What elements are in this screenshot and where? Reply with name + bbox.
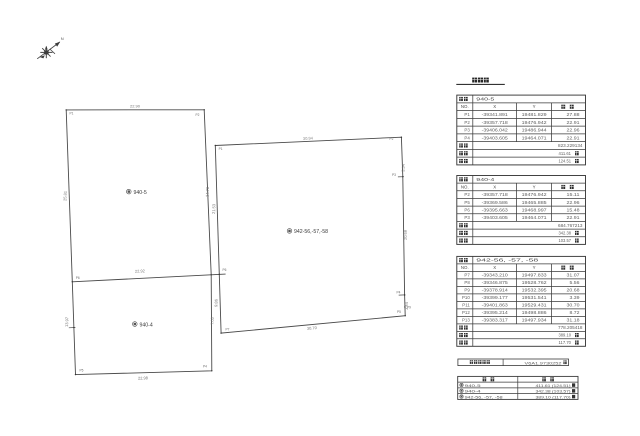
svg-text:-39383.317: -39383.317 (482, 318, 509, 323)
svg-text:P13: P13 (462, 318, 470, 323)
svg-text:19476.942: 19476.942 (522, 192, 548, 197)
svg-text:389.10 (117.70): 389.10 (117.70) (536, 394, 572, 399)
svg-text:P12: P12 (462, 310, 470, 315)
svg-text:19528.762: 19528.762 (522, 280, 548, 285)
svg-text:15.48: 15.48 (567, 207, 581, 212)
svg-text:8.72: 8.72 (570, 310, 581, 315)
svg-text:P1: P1 (464, 112, 470, 117)
svg-text:-39357.718: -39357.718 (482, 120, 509, 125)
svg-text:684.767213: 684.767213 (558, 223, 583, 228)
svg-text:30.94: 30.94 (303, 136, 314, 141)
svg-text:19531.541: 19531.541 (522, 295, 548, 300)
svg-text:342.38 (103.57): 342.38 (103.57) (536, 389, 572, 394)
svg-text:22.91: 22.91 (567, 135, 581, 140)
svg-text:N: N (61, 36, 64, 41)
svg-text:-39378.914: -39378.914 (482, 288, 509, 293)
svg-text:942-56, -57, -58: 942-56, -57, -58 (476, 258, 539, 263)
svg-text:19464.071: 19464.071 (522, 135, 548, 140)
svg-text:-39395.663: -39395.663 (482, 207, 509, 212)
svg-text:P4: P4 (203, 365, 207, 369)
svg-text:19476.942: 19476.942 (522, 120, 548, 125)
svg-text:P6: P6 (464, 207, 470, 212)
svg-text:124.51: 124.51 (559, 159, 572, 164)
svg-text:7.03: 7.03 (210, 316, 215, 325)
svg-text:940-5: 940-5 (134, 190, 147, 196)
svg-text:19468.997: 19468.997 (522, 207, 548, 212)
svg-text:942-56, -57, -58: 942-56, -57, -58 (465, 394, 504, 399)
svg-text:Y: Y (533, 265, 536, 270)
svg-text:25.81: 25.81 (62, 190, 67, 201)
svg-text:940-5: 940-5 (465, 383, 482, 388)
svg-text:3.39: 3.39 (570, 295, 581, 300)
svg-text:-39357.718: -39357.718 (482, 192, 509, 197)
svg-text:19486.944: 19486.944 (522, 128, 548, 133)
svg-text:31.07: 31.07 (567, 273, 581, 278)
svg-text:P7: P7 (464, 273, 470, 278)
svg-text:P4: P4 (464, 135, 470, 140)
svg-text:19481.829: 19481.829 (522, 112, 548, 117)
svg-text:30.70: 30.70 (567, 303, 581, 308)
svg-text:NO.: NO. (461, 104, 469, 109)
svg-text:-39406.042: -39406.042 (482, 128, 509, 133)
svg-text:940-4: 940-4 (476, 177, 495, 182)
svg-text:22.90: 22.90 (130, 103, 141, 108)
svg-text:X: X (493, 104, 496, 109)
svg-text:V6A1.9730252: V6A1.9730252 (525, 361, 562, 365)
svg-text:19529.431: 19529.431 (522, 303, 548, 308)
svg-text:-39403.605: -39403.605 (482, 135, 509, 140)
svg-text:Y: Y (533, 104, 536, 109)
svg-text:19464.071: 19464.071 (522, 215, 548, 220)
svg-text:P6: P6 (76, 276, 80, 280)
svg-text:778.205418: 778.205418 (558, 325, 583, 330)
svg-text:X: X (493, 184, 496, 189)
svg-text:P7: P7 (226, 328, 230, 332)
svg-text:5.54: 5.54 (400, 163, 405, 172)
svg-text:P3: P3 (392, 173, 396, 177)
svg-text:22.92: 22.92 (135, 268, 146, 274)
svg-text:19497.833: 19497.833 (522, 273, 548, 278)
svg-text:20.69: 20.69 (403, 229, 408, 240)
svg-text:24.78: 24.78 (205, 186, 210, 197)
svg-text:P9: P9 (464, 288, 470, 293)
svg-text:P5: P5 (397, 310, 401, 314)
svg-text:P3: P3 (464, 215, 470, 220)
svg-text:19532.395: 19532.395 (522, 288, 548, 293)
svg-text:-39343.210: -39343.210 (482, 273, 509, 278)
svg-text:P1: P1 (219, 147, 223, 151)
svg-text:823.229134: 823.229134 (558, 143, 583, 148)
svg-text:Y: Y (533, 184, 536, 189)
svg-text:P5: P5 (464, 200, 470, 205)
svg-text:9.86: 9.86 (213, 298, 218, 307)
svg-text:103.57: 103.57 (559, 238, 572, 243)
svg-text:P5: P5 (80, 369, 84, 373)
svg-text:P1: P1 (70, 112, 74, 116)
svg-text:3.44: 3.44 (404, 301, 409, 310)
svg-text:27.88: 27.88 (567, 112, 581, 117)
svg-text:20.68: 20.68 (567, 288, 581, 293)
svg-text:13.97: 13.97 (64, 316, 69, 327)
svg-text:19465.885: 19465.885 (522, 200, 548, 205)
svg-text:P3: P3 (464, 128, 470, 133)
svg-text:-39399.177: -39399.177 (482, 295, 509, 300)
svg-text:P10: P10 (462, 295, 470, 300)
svg-text:-39346.875: -39346.875 (482, 280, 509, 285)
svg-text:NO.: NO. (461, 265, 469, 270)
svg-text:940-4: 940-4 (465, 389, 482, 394)
svg-text:-39403.605: -39403.605 (482, 215, 509, 220)
svg-text:15.11: 15.11 (567, 192, 581, 197)
svg-text:940-5: 940-5 (476, 97, 495, 102)
svg-text:389.10: 389.10 (559, 333, 572, 338)
svg-text:5.56: 5.56 (570, 280, 581, 285)
svg-text:22.91: 22.91 (567, 120, 581, 125)
svg-text:-39401.863: -39401.863 (482, 303, 509, 308)
svg-text:342.38: 342.38 (559, 230, 572, 235)
svg-text:22.98: 22.98 (138, 375, 149, 380)
svg-text:19497.934: 19497.934 (522, 318, 548, 323)
svg-text:22.96: 22.96 (567, 128, 581, 133)
svg-text:P8: P8 (464, 280, 470, 285)
svg-text:940-4: 940-4 (140, 322, 153, 328)
svg-text:P11: P11 (462, 303, 470, 308)
svg-text:-39395.214: -39395.214 (482, 310, 509, 315)
svg-text:P2: P2 (196, 113, 200, 117)
svg-text:30.70: 30.70 (307, 325, 318, 331)
svg-text:117.70: 117.70 (559, 340, 572, 345)
svg-text:P2: P2 (464, 120, 470, 125)
svg-text:NO.: NO. (461, 184, 469, 189)
svg-text:31.18: 31.18 (567, 318, 581, 323)
svg-text:X: X (493, 265, 496, 270)
svg-text:P2: P2 (390, 137, 394, 141)
svg-text:-39369.586: -39369.586 (482, 200, 509, 205)
svg-text:22.96: 22.96 (567, 200, 581, 205)
svg-text:19498.886: 19498.886 (522, 310, 548, 315)
svg-text:22.91: 22.91 (567, 215, 581, 220)
svg-text:P4: P4 (397, 291, 401, 295)
svg-text:P6: P6 (223, 268, 227, 272)
svg-text:-39341.891: -39341.891 (482, 112, 509, 117)
svg-text:942-56,-57,-58: 942-56,-57,-58 (294, 229, 328, 235)
svg-text:411.61 (124.51): 411.61 (124.51) (536, 383, 572, 388)
svg-text:411.61: 411.61 (559, 151, 572, 156)
svg-text:21.53: 21.53 (211, 203, 216, 214)
svg-text:P2: P2 (464, 192, 470, 197)
